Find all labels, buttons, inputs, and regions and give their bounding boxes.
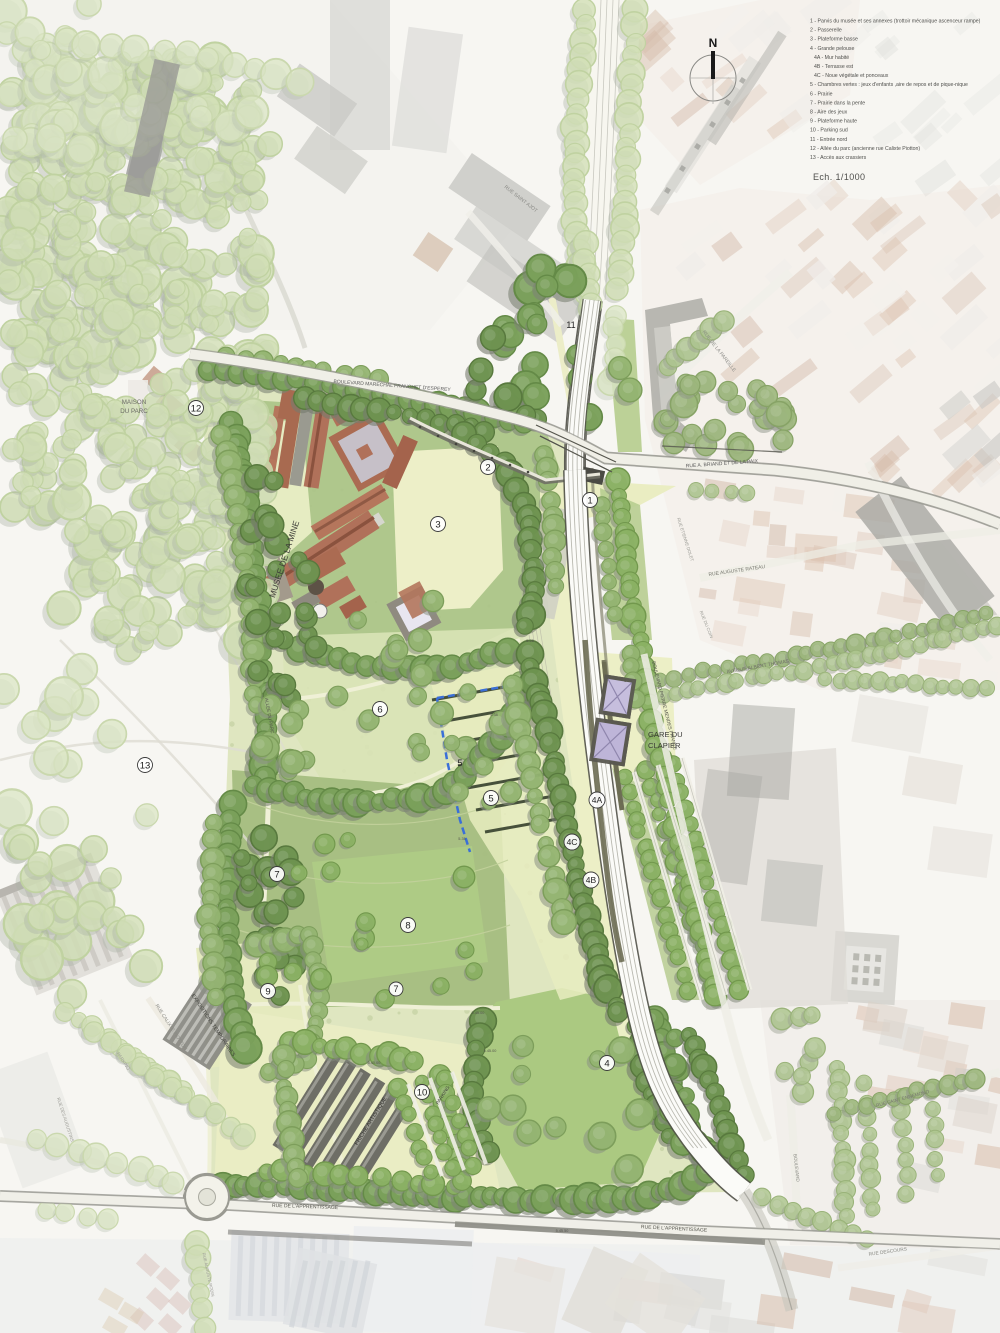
- svg-text:5.28: 5.28: [526, 639, 533, 643]
- svg-text:5.45.00: 5.45.00: [368, 1061, 381, 1065]
- svg-text:5.45.00: 5.45.00: [472, 1011, 485, 1015]
- svg-text:4A: 4A: [592, 795, 603, 805]
- svg-text:5.35: 5.35: [458, 837, 465, 841]
- svg-text:1 - Parvis du musée et ses ann: 1 - Parvis du musée et ses annexes (trot…: [810, 19, 981, 25]
- svg-text:5 - Chambres vertes : jeux d'e: 5 - Chambres vertes : jeux d'enfants ,ai…: [810, 82, 968, 88]
- svg-text:4C - Noue végétale et ponceaux: 4C - Noue végétale et ponceaux: [814, 73, 889, 79]
- svg-text:Ech. 1/1000: Ech. 1/1000: [813, 172, 865, 182]
- svg-text:13 - Accès aux crassiers: 13 - Accès aux crassiers: [810, 155, 867, 161]
- svg-text:4A - Mur habité: 4A - Mur habité: [814, 55, 849, 61]
- svg-text:6 - Prairie: 6 - Prairie: [810, 91, 833, 97]
- svg-text:CLAPIER: CLAPIER: [648, 741, 681, 750]
- svg-text:7 - Prairie dans la pente: 7 - Prairie dans la pente: [810, 100, 865, 106]
- svg-text:13: 13: [140, 760, 151, 771]
- svg-text:6: 6: [377, 704, 382, 715]
- svg-text:DU PARC: DU PARC: [120, 408, 148, 415]
- svg-text:9 - Plateforme haute: 9 - Plateforme haute: [810, 119, 857, 125]
- svg-text:2 - Passerelle: 2 - Passerelle: [810, 28, 842, 34]
- svg-text:5: 5: [457, 758, 462, 768]
- svg-text:5: 5: [488, 793, 493, 804]
- svg-text:8 - Aire des jeux: 8 - Aire des jeux: [810, 110, 848, 116]
- svg-text:MAISON: MAISON: [122, 399, 146, 406]
- svg-text:7: 7: [274, 869, 279, 880]
- svg-text:5.28: 5.28: [624, 679, 631, 683]
- svg-text:GARE DU: GARE DU: [648, 730, 683, 739]
- svg-text:12: 12: [191, 403, 202, 414]
- svg-text:5.45.00: 5.45.00: [484, 1049, 497, 1053]
- svg-text:N: N: [709, 36, 718, 50]
- svg-text:4B: 4B: [586, 875, 597, 885]
- svg-text:4C: 4C: [567, 837, 578, 847]
- svg-text:11 - Entrée nord: 11 - Entrée nord: [810, 137, 847, 143]
- svg-text:12 - Allée du parc (ancienne r: 12 - Allée du parc (ancienne rue Calixte…: [810, 146, 920, 152]
- svg-text:10 - Parking sud: 10 - Parking sud: [810, 128, 848, 134]
- svg-text:10: 10: [417, 1087, 428, 1098]
- svg-text:3: 3: [435, 519, 440, 530]
- svg-text:8: 8: [405, 920, 410, 931]
- svg-text:4 - Grande pelouse: 4 - Grande pelouse: [810, 46, 855, 52]
- svg-text:9: 9: [265, 986, 270, 997]
- svg-text:5.45.50: 5.45.50: [556, 1229, 569, 1233]
- svg-text:3 - Plateforme basse: 3 - Plateforme basse: [810, 37, 858, 43]
- svg-text:5.38: 5.38: [490, 713, 497, 717]
- svg-text:2: 2: [485, 462, 490, 473]
- svg-text:4B - Terrasse est: 4B - Terrasse est: [814, 64, 854, 70]
- svg-text:1: 1: [587, 495, 592, 506]
- svg-text:4: 4: [604, 1058, 609, 1069]
- svg-text:7: 7: [393, 984, 398, 994]
- svg-text:11: 11: [566, 320, 575, 330]
